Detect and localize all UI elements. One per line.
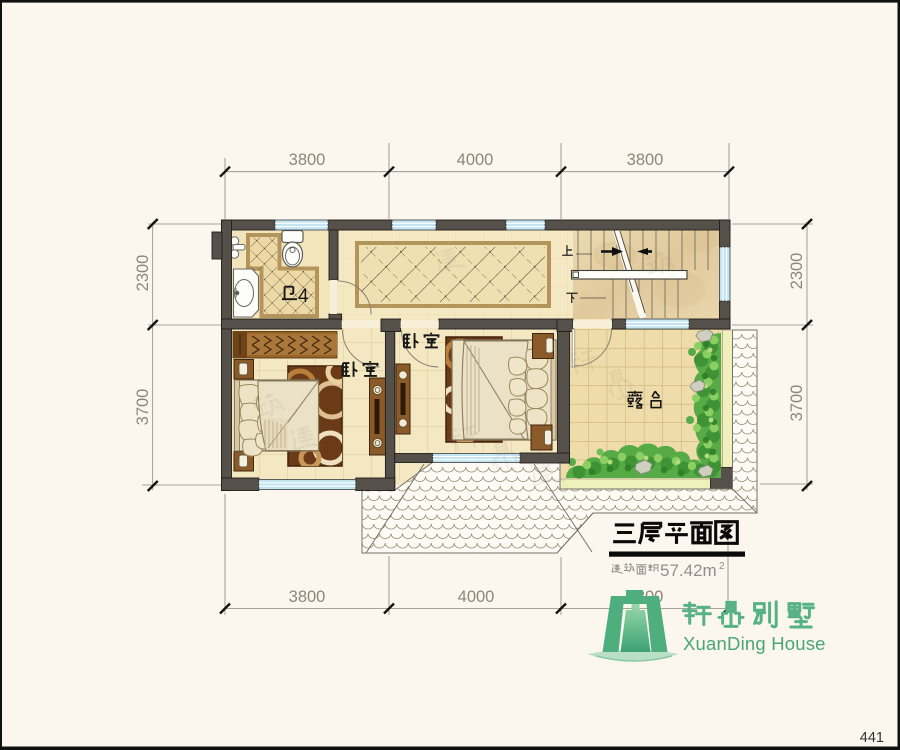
- svg-text:XuanDing House: XuanDing House: [683, 633, 826, 654]
- svg-text:3700: 3700: [788, 385, 806, 422]
- svg-text:2300: 2300: [788, 253, 806, 290]
- svg-text:2: 2: [719, 561, 725, 572]
- svg-text:3800: 3800: [289, 151, 326, 169]
- svg-text:441: 441: [860, 730, 884, 746]
- svg-text:57.42m: 57.42m: [660, 561, 717, 580]
- svg-text:3800: 3800: [627, 151, 664, 169]
- svg-text:2300: 2300: [134, 255, 152, 292]
- svg-text:4000: 4000: [458, 588, 495, 606]
- svg-text:4000: 4000: [457, 151, 494, 169]
- svg-text:4: 4: [298, 286, 309, 307]
- svg-text:3800: 3800: [289, 588, 326, 606]
- svg-text:3700: 3700: [134, 389, 152, 426]
